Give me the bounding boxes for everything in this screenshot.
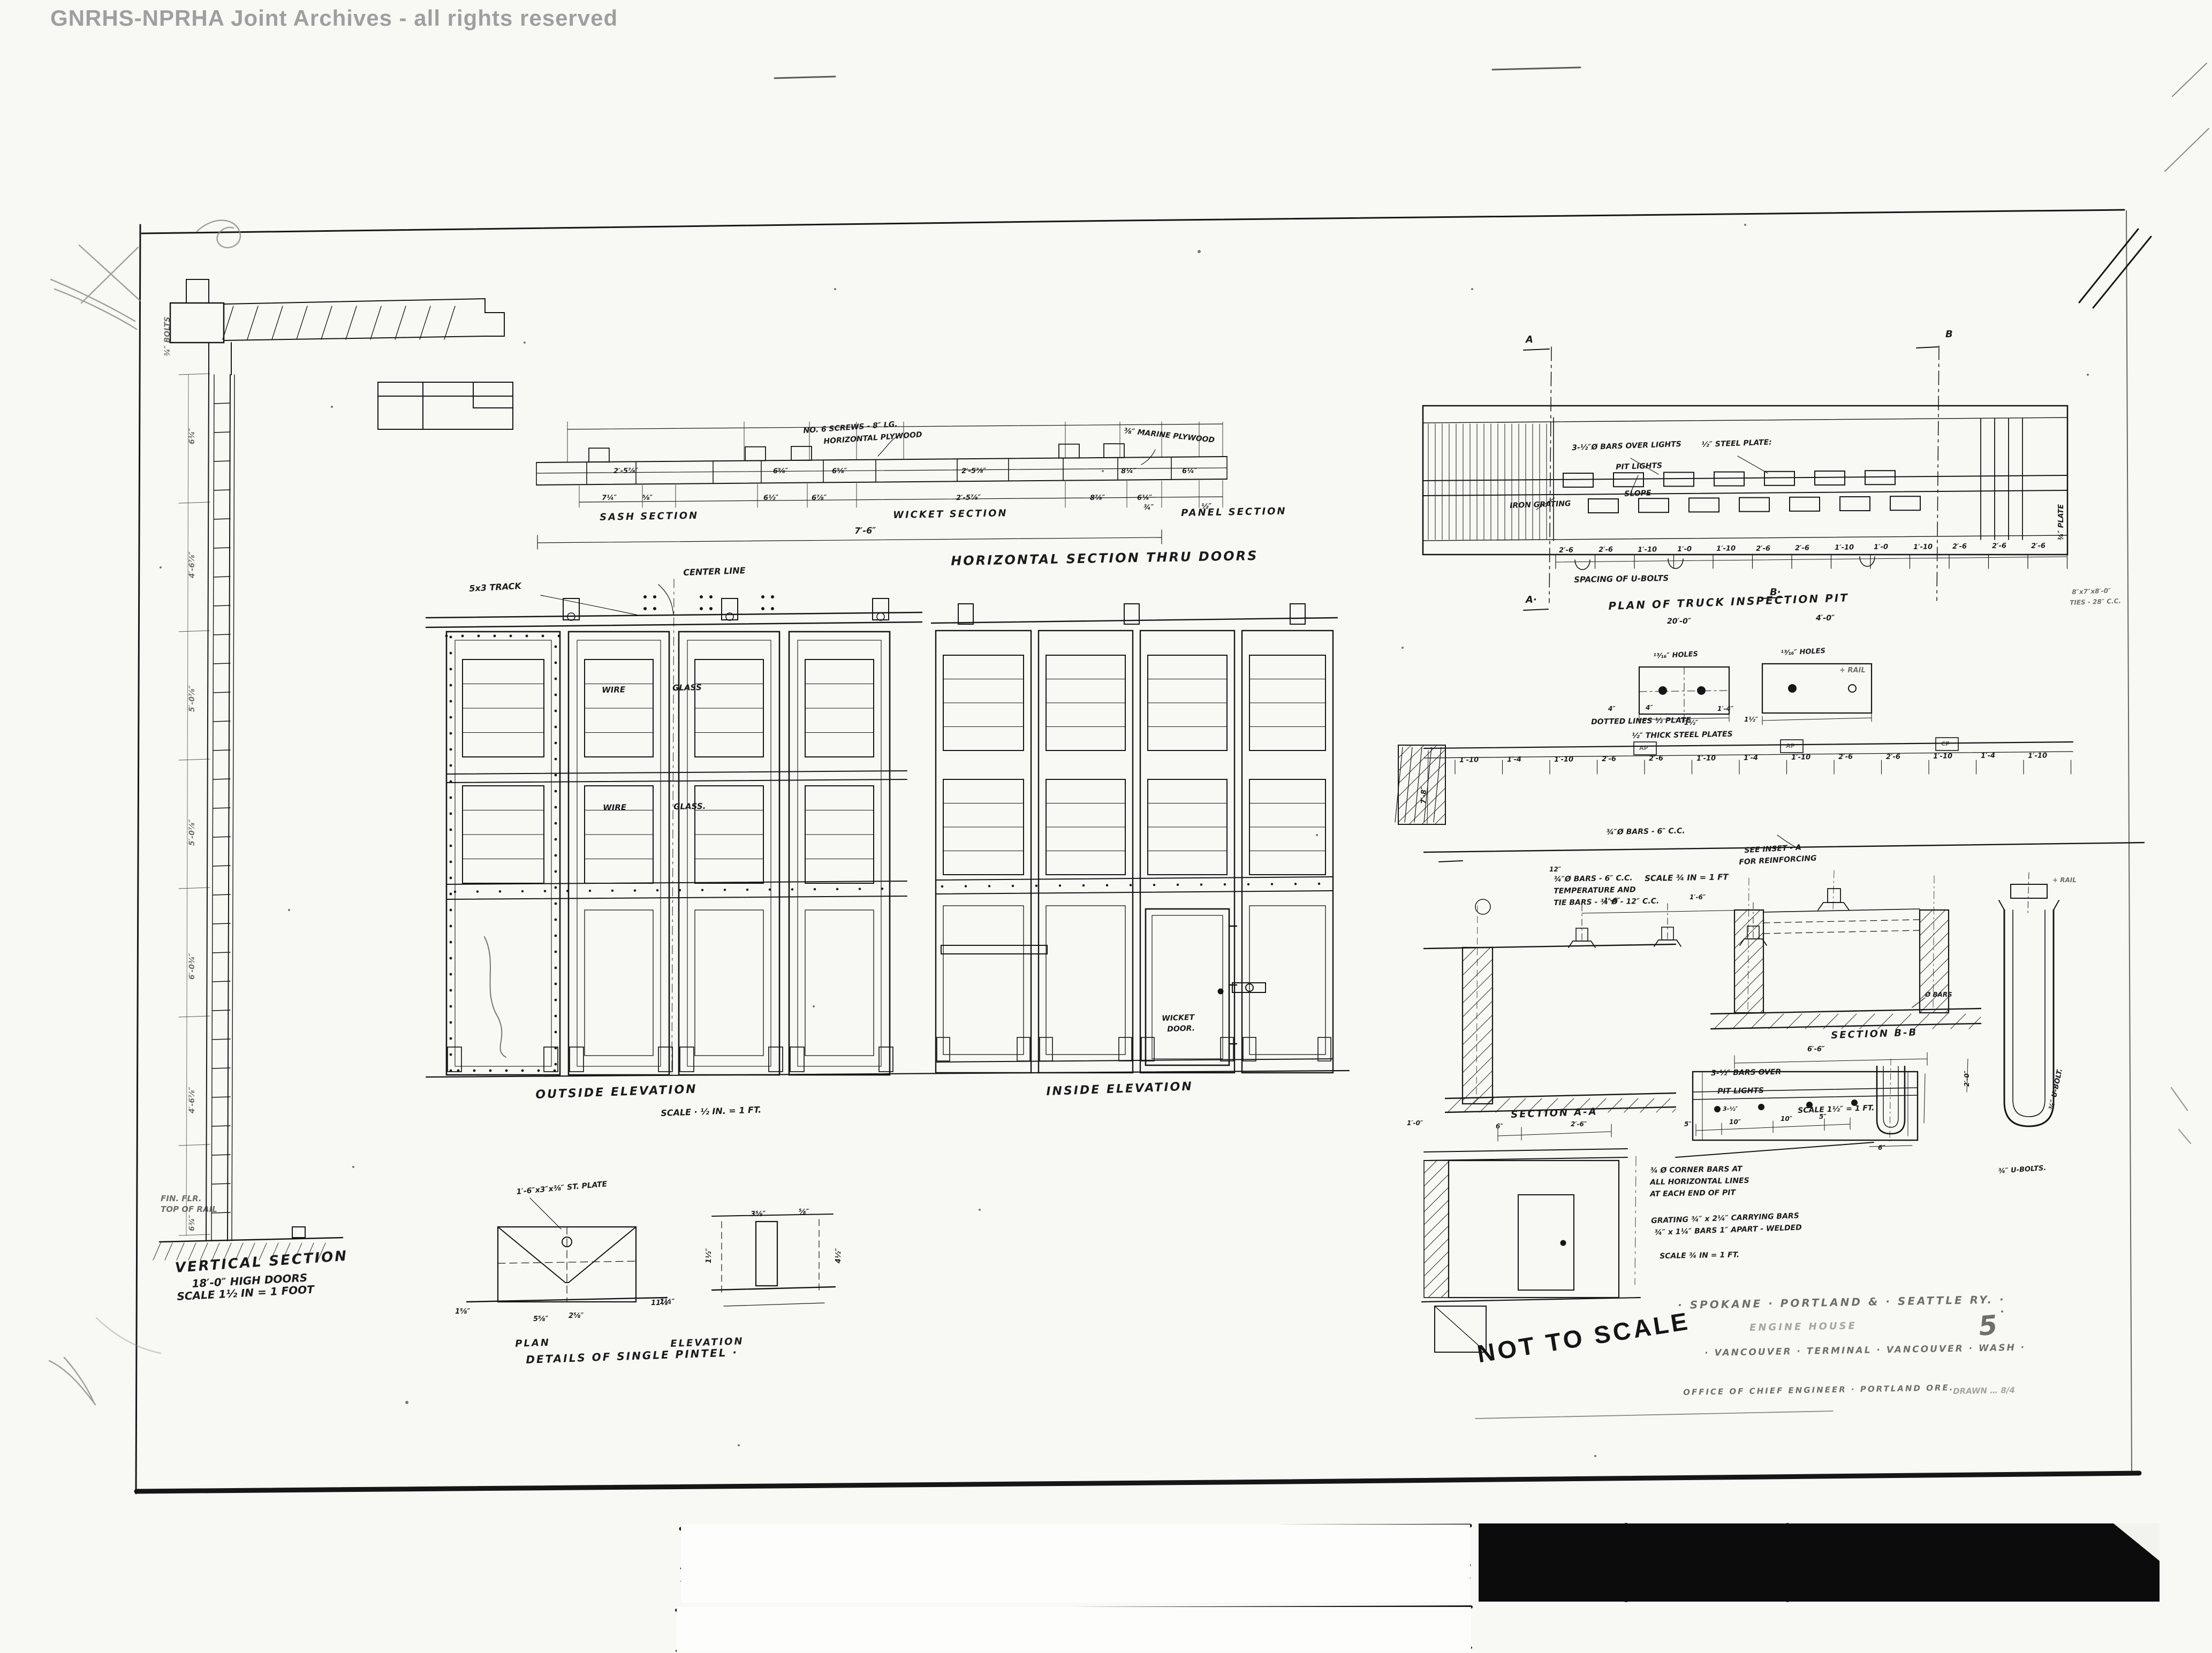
- label-secb-20: 2′-0″: [1964, 1071, 1971, 1087]
- dim-hsec_bot-5: 8⅞″: [1090, 495, 1105, 502]
- label-tb-sheet: 5: [1978, 1311, 1998, 1340]
- label-vd6: 4′-6⅞″: [188, 1087, 196, 1113]
- label-tag3: CP: [1941, 741, 1950, 747]
- label-seca-bars2: TEMPERATURE AND: [1554, 886, 1636, 895]
- label-corner3: AT EACH END OF PIT: [1650, 1189, 1736, 1198]
- label-pld1: 3-½″ BARS OVER: [1711, 1068, 1781, 1078]
- dim-band-6: 1′-4: [1744, 754, 1758, 762]
- dim-pit-0: 2′-6: [1559, 547, 1573, 555]
- dim-hsec_bot-1: ⅝″: [642, 495, 653, 502]
- label-seca-26: 2′-6″: [1571, 1121, 1587, 1128]
- dim-hsec_bot-3: 6⅞″: [812, 495, 827, 502]
- label-watermark: GNRHS-NPRHA Joint Archives - all rights …: [50, 6, 618, 30]
- dim-pit-12: 2′-6: [2031, 542, 2046, 550]
- label-ubolt-6: 6″: [1878, 1144, 1885, 1151]
- dim-band-7: 1′-10: [1791, 754, 1810, 761]
- drawing-linework: [0, 0, 2212, 1653]
- dim-pit-7: 1′-10: [1835, 544, 1854, 551]
- dim-pit-2: 1′-10: [1638, 546, 1657, 553]
- label-dotted-note: DOTTED LINES ½ PLATE: [1591, 717, 1691, 726]
- label-pld-5b: 5″: [1819, 1113, 1827, 1120]
- label-hsec-d34: ¾″: [1143, 504, 1154, 512]
- label-inset-14: 1′-4″: [1717, 706, 1733, 712]
- label-seca-16a: 1′-6″: [1604, 897, 1620, 904]
- dim-pit-8: 1′-0: [1874, 544, 1888, 551]
- label-pd9: 4½″: [835, 1248, 843, 1263]
- label-pit-b-top: B: [1945, 330, 1953, 340]
- dim-hsec_bot-2: 6½″: [763, 495, 779, 502]
- dim-hsec_bot-6: 6¼″: [1137, 495, 1153, 502]
- label-seca-scale: SCALE ¾ IN = 1 FT: [1645, 873, 1729, 883]
- label-pit-spacing: SPACING OF U-BOLTS: [1574, 574, 1669, 585]
- label-vd7: 6¾″: [188, 1215, 196, 1232]
- dim-pit-11: 2′-6: [1992, 543, 2006, 550]
- label-pit-b-bot: B·: [1770, 588, 1781, 598]
- label-seca-16b: 1′-6″: [1690, 894, 1706, 901]
- label-pd8: 11⅞″: [651, 1300, 671, 1307]
- label-hsec-panel: PANEL SECTION: [1181, 507, 1287, 519]
- dim-band-2: 1′-10: [1554, 756, 1573, 763]
- label-vsec-toprail: TOP OF RAIL: [161, 1205, 217, 1214]
- dim-band-1: 1′-4: [1507, 756, 1521, 764]
- label-pld-mid: 3-½″: [1723, 1106, 1738, 1112]
- label-pld-5a: 5″: [1684, 1121, 1692, 1128]
- dim-pit-5: 2′-6: [1756, 545, 1770, 552]
- label-corner2: ALL HORIZONTAL LINES: [1650, 1177, 1749, 1187]
- label-secb-66: 6′-6″: [1807, 1046, 1825, 1053]
- label-seca-10: 1′-0″: [1407, 1120, 1423, 1127]
- dim-pit-10: 2′-6: [1952, 543, 1967, 551]
- label-inset-112a: 1½″: [1684, 719, 1698, 726]
- dim-hsec_bot-4: 2′-5⅞″: [956, 494, 981, 502]
- label-wire2b: GLASS.: [673, 802, 706, 812]
- label-pd5: 3⅝″: [751, 1211, 766, 1218]
- label-band-78: 7′-8″: [1421, 786, 1428, 804]
- label-secb-bars: Ø BARS: [1925, 991, 1952, 998]
- label-vd4: 5′-0⅞″: [188, 819, 196, 846]
- label-pld-10b: 10″: [1781, 1116, 1792, 1123]
- label-grating-scale: SCALE ¾ IN = 1 FT.: [1660, 1251, 1739, 1260]
- label-pd7: 1½″: [706, 1248, 713, 1263]
- label-pit-lights: PIT LIGHTS: [1616, 462, 1662, 472]
- label-inset-4b: 4″: [1646, 704, 1653, 711]
- label-seca-6: 6″: [1496, 1123, 1503, 1130]
- dim-hsec_top-3: 2′-5⅞″: [961, 467, 986, 475]
- label-pit-40: 4′-0″: [1816, 615, 1835, 623]
- label-pit-a-bot: A·: [1526, 595, 1537, 605]
- label-pd2: 5⅝″: [533, 1316, 548, 1323]
- label-tb2: ENGINE HOUSE: [1749, 1321, 1857, 1333]
- label-seca-bars1: ¾″Ø BARS - 6″ C.C.: [1554, 874, 1633, 883]
- label-wicket2: DOOR.: [1167, 1025, 1195, 1033]
- dim-pit-9: 1′-10: [1913, 543, 1933, 551]
- label-vsec-bolts: ¾″ BOLTS: [164, 317, 172, 357]
- label-wire1b: GLASS: [672, 684, 702, 693]
- dim-pit-4: 1′-10: [1716, 545, 1736, 553]
- label-clrail: + RAIL: [2052, 877, 2077, 884]
- dim-band-12: 1′-10: [2028, 752, 2047, 760]
- label-hsec-wicket: WICKET SECTION: [893, 509, 1008, 521]
- label-corner1: ¾ Ø CORNER BARS AT: [1650, 1165, 1743, 1175]
- label-seca-12: 12″: [1549, 866, 1561, 873]
- label-vd1: 6¾″: [188, 428, 196, 445]
- label-hsec-d12: ½″: [1201, 503, 1211, 511]
- label-tag1: AP: [1639, 745, 1648, 752]
- dim-hsec_top-2: 6⅝″: [832, 468, 847, 475]
- label-pit-a-top: A: [1526, 335, 1533, 345]
- label-pld-10a: 10″: [1729, 1119, 1741, 1126]
- label-thick-note: ½″ THICK STEEL PLATES: [1632, 731, 1733, 740]
- label-tb4b: DRAWN … 8/4: [1953, 1386, 2015, 1396]
- label-pd3: 2⅝″: [569, 1313, 584, 1320]
- label-pintel-plan: PLAN: [515, 1338, 550, 1349]
- label-pit-200: 20′-0″: [1667, 618, 1691, 626]
- label-hsec-sash: SASH SECTION: [600, 511, 699, 523]
- label-inset-112b: 1½″: [1744, 716, 1758, 723]
- label-pd6: ⅝″: [799, 1209, 809, 1216]
- dim-band-4: 2′-6: [1649, 755, 1663, 763]
- dim-hsec_top-5: 6¼″: [1182, 468, 1198, 475]
- label-pit-ties1: 8″x7″x8′-0″: [2072, 587, 2111, 595]
- label-hsec-76: 7′-6″: [854, 526, 876, 535]
- label-wire2a: WIRE: [603, 803, 626, 813]
- label-pd1: 1⅝″: [455, 1308, 470, 1316]
- label-plate-rot: ¾″ PLATE: [2058, 504, 2065, 541]
- dim-band-10: 1′-10: [1933, 753, 1952, 760]
- dim-band-11: 1′-4: [1981, 753, 1995, 760]
- dim-hsec_top-4: 8¼″: [1121, 468, 1137, 475]
- scanned-blueprint-sheet: GNRHS-NPRHA Joint Archives - all rights …: [0, 0, 2212, 1653]
- label-vd5: 6′-0¾″: [188, 953, 196, 980]
- label-vd2: 4′-6⅞″: [188, 551, 196, 578]
- dim-pit-3: 1′-0: [1677, 545, 1692, 553]
- ruler-black-bar: [1479, 1523, 2160, 1602]
- dim-hsec_top-1: 6⅝″: [773, 468, 789, 475]
- dim-band-9: 2′-6: [1886, 753, 1900, 761]
- label-rail-cl: + RAIL: [1839, 667, 1866, 674]
- dim-hsec_bot-0: 7¼″: [602, 495, 617, 502]
- dim-band-3: 2′-6: [1602, 755, 1616, 763]
- dim-band-0: 1′-10: [1459, 756, 1479, 764]
- dim-pit-6: 2′-6: [1795, 544, 1809, 552]
- label-pld2: PIT LIGHTS: [1717, 1087, 1764, 1095]
- label-vsec-finflr: FIN. FLR.: [161, 1195, 202, 1203]
- ruler-bottom: [677, 1607, 1471, 1652]
- label-tag2: AP: [1786, 743, 1795, 749]
- dim-pit-1: 2′-6: [1599, 547, 1613, 554]
- label-band-bars: ¾″Ø BARS - 6″ C.C.: [1606, 827, 1685, 836]
- ruler-top: [681, 1525, 1470, 1603]
- label-pit-slope: SLOPE: [1624, 489, 1652, 498]
- dim-band-8: 2′-6: [1838, 754, 1853, 761]
- label-wicket1: WICKET: [1162, 1014, 1194, 1023]
- label-wire1a: WIRE: [602, 686, 625, 695]
- dim-band-5: 1′-10: [1696, 755, 1716, 762]
- label-vd3: 5′-0⅞″: [188, 685, 196, 712]
- dim-hsec_top-0: 2′-5⅞″: [613, 467, 638, 475]
- label-inset-4a: 4″: [1608, 706, 1616, 712]
